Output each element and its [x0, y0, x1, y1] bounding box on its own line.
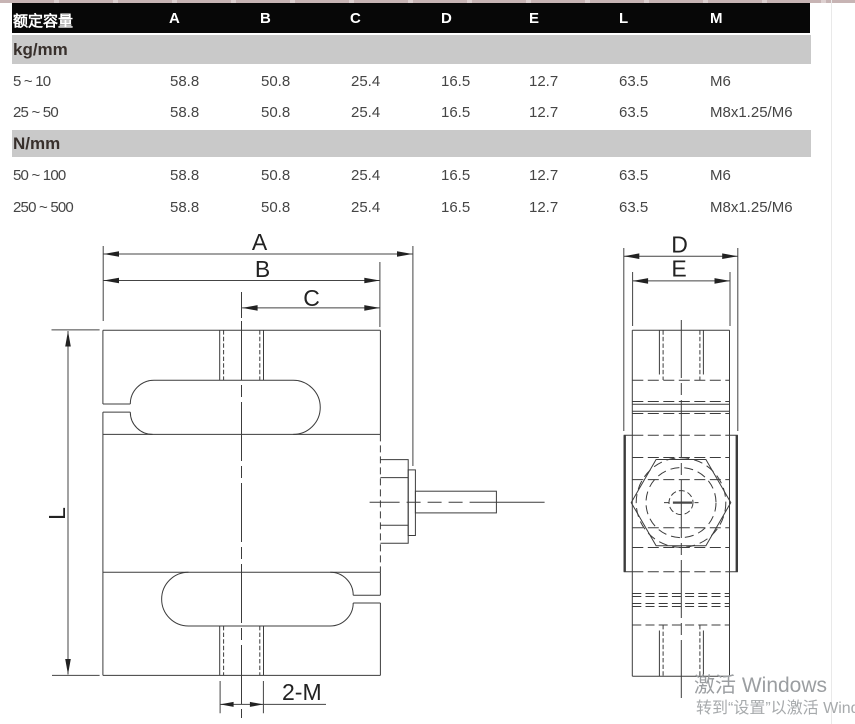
svg-text:D: D: [671, 232, 688, 258]
svg-text:2-M: 2-M: [282, 679, 322, 705]
svg-text:C: C: [303, 285, 320, 311]
svg-text:E: E: [671, 256, 686, 282]
svg-text:B: B: [255, 256, 270, 282]
svg-text:A: A: [252, 229, 268, 255]
svg-text:L: L: [44, 507, 70, 520]
